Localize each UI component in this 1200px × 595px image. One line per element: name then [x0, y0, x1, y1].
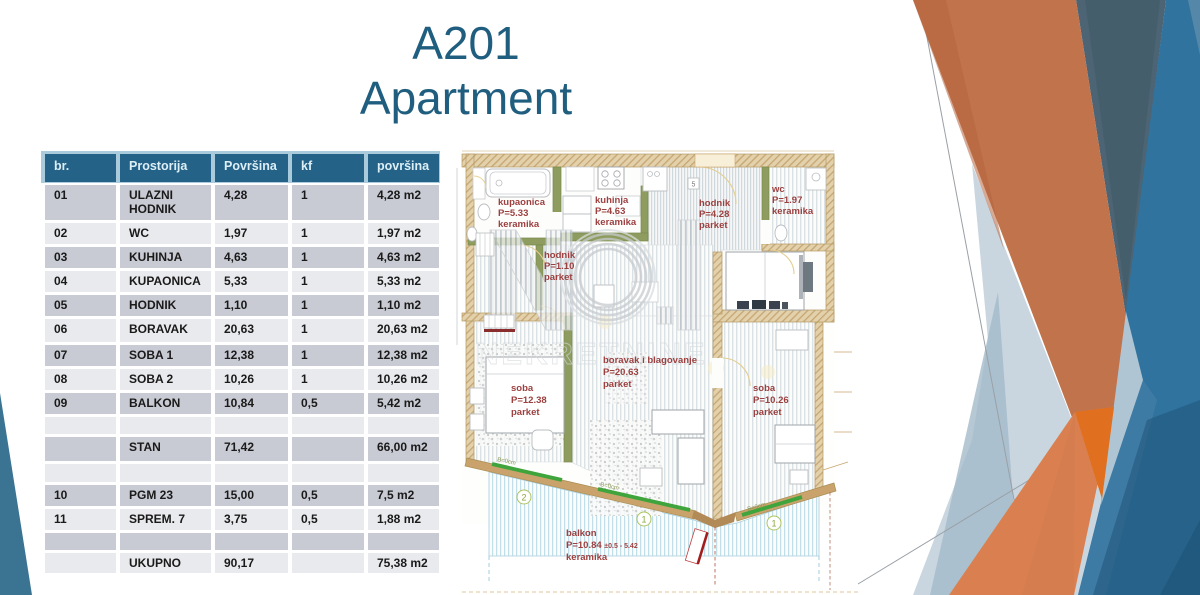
svg-text:P=1.97: P=1.97 [772, 195, 802, 206]
svg-text:2: 2 [521, 493, 526, 503]
svg-text:parket: parket [699, 220, 728, 231]
svg-text:keramika: keramika [566, 552, 608, 563]
svg-text:hodnik: hodnik [544, 250, 576, 261]
svg-text:P=1.10: P=1.10 [544, 261, 574, 272]
svg-text:5: 5 [692, 182, 696, 189]
svg-text:parket: parket [603, 379, 632, 390]
svg-text:kuhinja: kuhinja [595, 195, 629, 206]
svg-text:boravak i blagovanje: boravak i blagovanje [603, 355, 697, 366]
svg-text:1: 1 [771, 519, 776, 529]
svg-text:kupaonica: kupaonica [498, 197, 546, 208]
svg-text:P=5.33: P=5.33 [498, 208, 528, 219]
svg-text:keramika: keramika [498, 219, 540, 230]
svg-text:keramika: keramika [772, 206, 814, 217]
svg-text:keramika: keramika [595, 217, 637, 228]
svg-text:balkon: balkon [566, 528, 597, 539]
svg-text:P=12.38: P=12.38 [511, 395, 547, 406]
svg-text:parket: parket [511, 407, 540, 418]
svg-text:P=10.26: P=10.26 [753, 395, 789, 406]
svg-text:P=4.28: P=4.28 [699, 209, 729, 220]
svg-text:hodnik: hodnik [699, 198, 731, 209]
svg-text:P=20.63: P=20.63 [603, 367, 639, 378]
svg-text:parket: parket [544, 272, 573, 283]
svg-text:soba: soba [753, 383, 776, 394]
svg-text:soba: soba [511, 383, 534, 394]
svg-text:1: 1 [641, 515, 646, 525]
svg-text:parket: parket [753, 407, 782, 418]
svg-text:P=4.63: P=4.63 [595, 206, 625, 217]
svg-text:wc: wc [771, 184, 785, 195]
